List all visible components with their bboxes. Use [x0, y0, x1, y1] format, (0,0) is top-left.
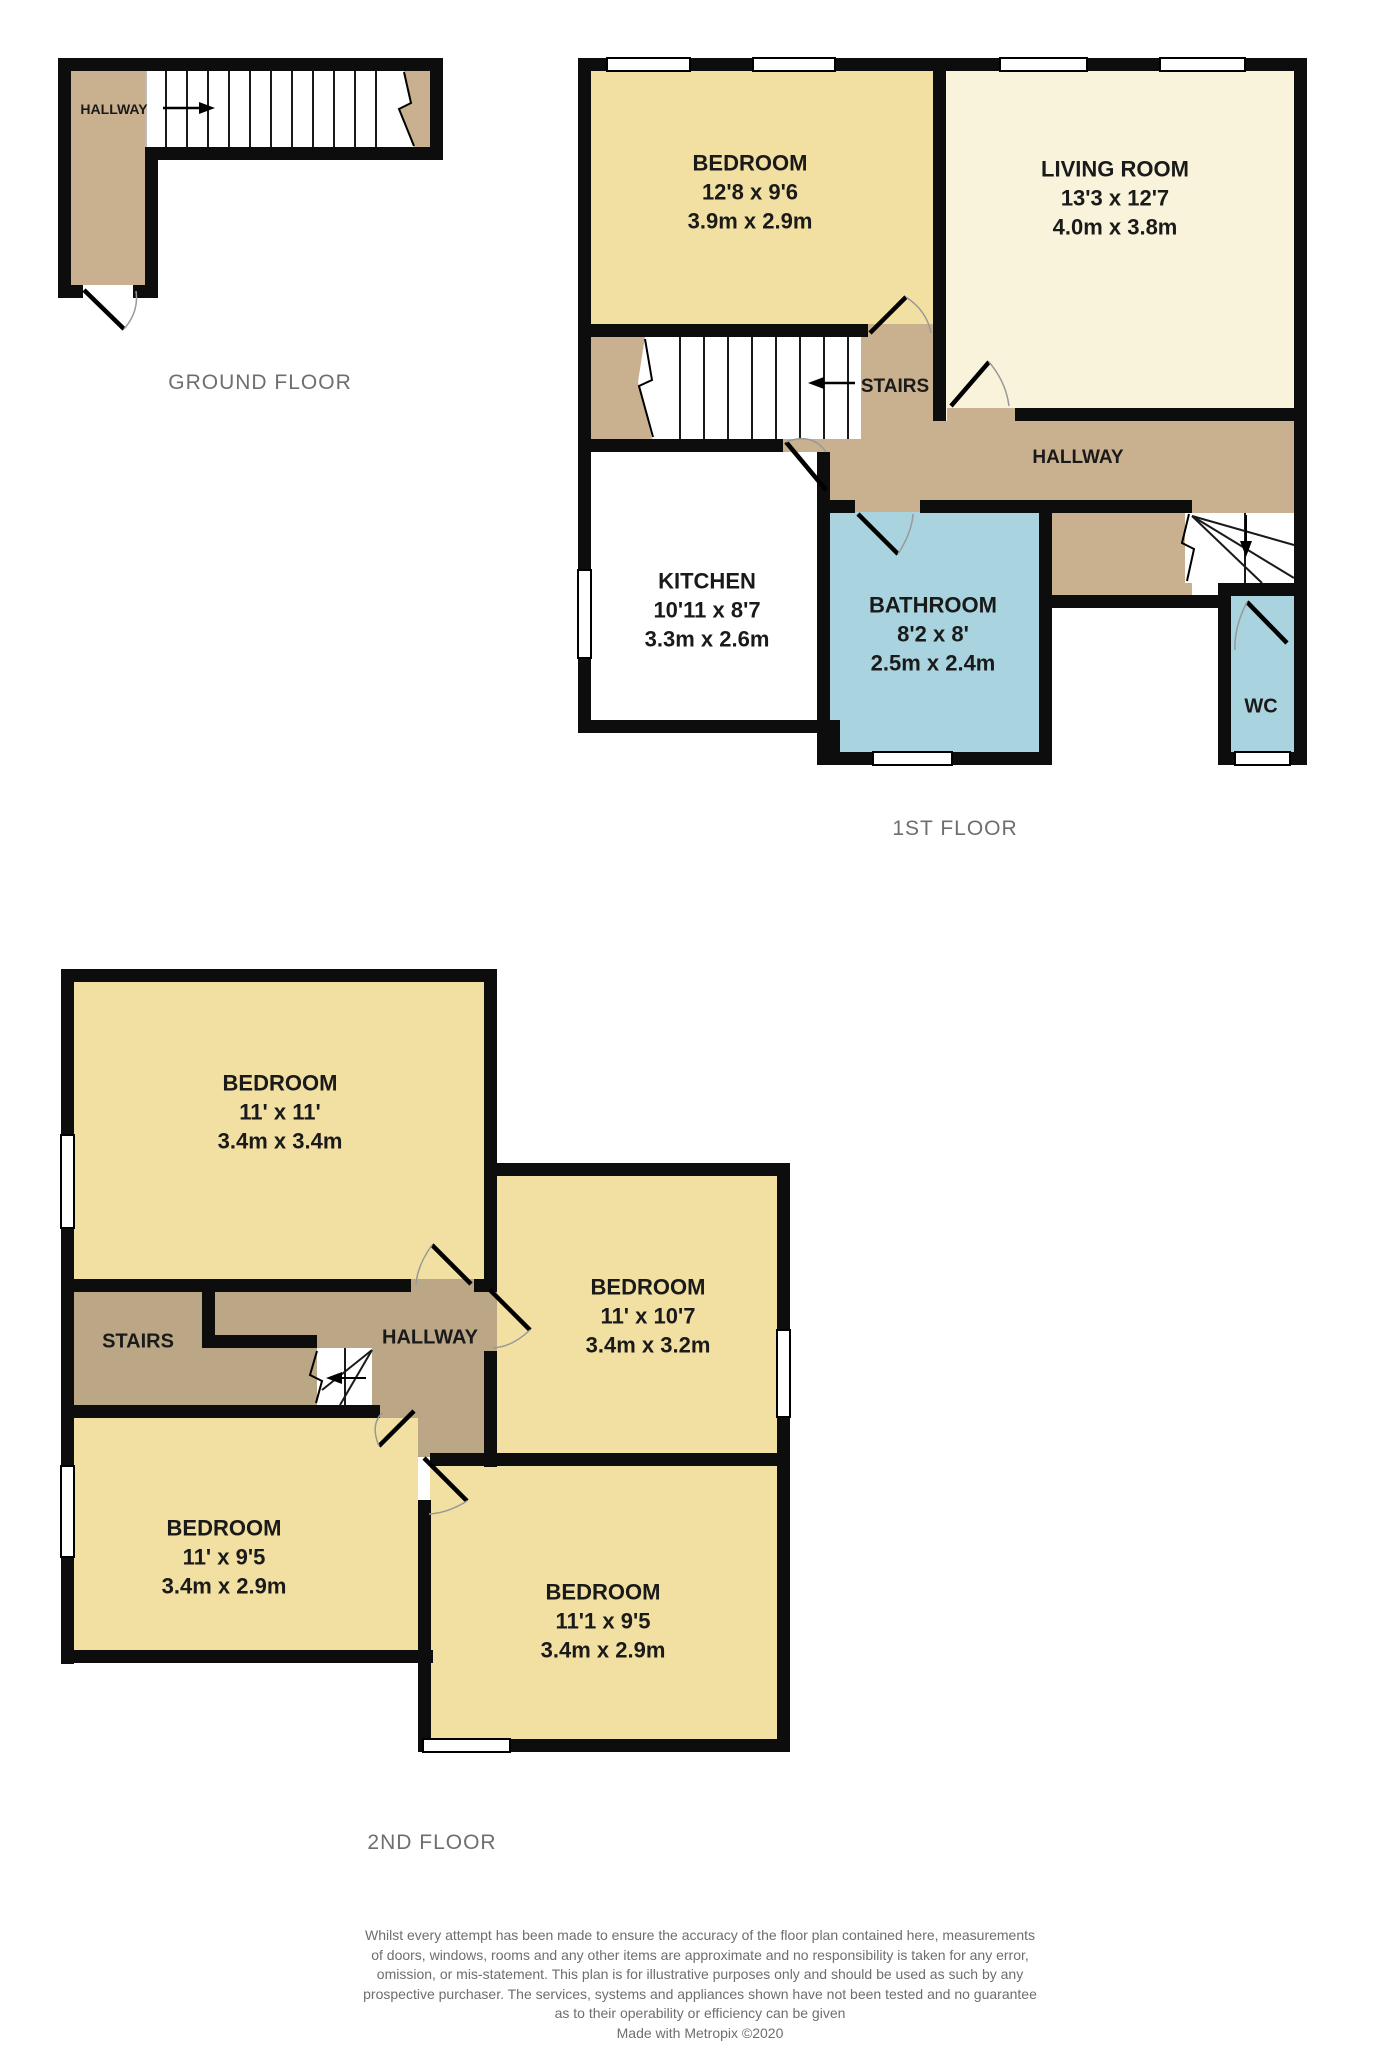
- room-size-imperial: 11'1 x 9'5: [541, 1607, 666, 1636]
- room-label-bedroom-1f: BEDROOM 12'8 x 9'6 3.9m x 2.9m: [688, 149, 813, 236]
- room-size-imperial: 11' x 11': [218, 1098, 343, 1127]
- stairs-winder: [310, 1348, 372, 1405]
- second-floor-plan: [61, 969, 790, 1752]
- disclaimer-line: omission, or mis-statement. This plan is…: [280, 1965, 1120, 1985]
- second-floor-title: 2ND FLOOR: [367, 1831, 496, 1855]
- room-size-imperial: 13'3 x 12'7: [1041, 184, 1189, 213]
- entrance-door: [84, 290, 137, 329]
- room-name: BEDROOM: [218, 1069, 343, 1098]
- room-size-metric: 3.4m x 3.4m: [218, 1127, 343, 1156]
- room-name: BATHROOM: [869, 591, 997, 620]
- room-size-imperial: 11' x 9'5: [162, 1543, 287, 1572]
- room-label-bedroom-left-2f: BEDROOM 11' x 9'5 3.4m x 2.9m: [162, 1514, 287, 1601]
- room-name: BEDROOM: [541, 1578, 666, 1607]
- room-name: LIVING ROOM: [1041, 155, 1189, 184]
- ground-floor-title: GROUND FLOOR: [168, 371, 352, 395]
- room-size-imperial: 11' x 10'7: [586, 1302, 711, 1331]
- disclaimer-line: Whilst every attempt has been made to en…: [280, 1926, 1120, 1946]
- room-size-metric: 3.4m x 3.2m: [586, 1331, 711, 1360]
- second-floor-hallway-label: HALLWAY: [382, 1327, 478, 1350]
- room-label-kitchen: KITCHEN 10'11 x 8'7 3.3m x 2.6m: [645, 567, 770, 654]
- stairs-down-winder: [1182, 513, 1294, 583]
- first-floor-hallway-label: HALLWAY: [1032, 447, 1123, 469]
- wc-label: WC: [1244, 696, 1277, 719]
- disclaimer-text: Whilst every attempt has been made to en…: [280, 1926, 1120, 2043]
- floorplan-graphic: [0, 0, 1385, 2048]
- first-floor-stairs-label: STAIRS: [861, 376, 929, 398]
- room-name: KITCHEN: [645, 567, 770, 596]
- room-size-imperial: 12'8 x 9'6: [688, 178, 813, 207]
- ground-hallway-label: HALLWAY: [80, 101, 147, 117]
- room-name: BEDROOM: [586, 1273, 711, 1302]
- room-size-metric: 4.0m x 3.8m: [1041, 213, 1189, 242]
- room-size-metric: 2.5m x 2.4m: [869, 649, 997, 678]
- room-size-metric: 3.3m x 2.6m: [645, 625, 770, 654]
- room-size-metric: 3.4m x 2.9m: [162, 1572, 287, 1601]
- room-label-bedroom-bottom-2f: BEDROOM 11'1 x 9'5 3.4m x 2.9m: [541, 1578, 666, 1665]
- disclaimer-line: of doors, windows, rooms and any other i…: [280, 1946, 1120, 1966]
- room-label-bedroom-top-2f: BEDROOM 11' x 11' 3.4m x 3.4m: [218, 1069, 343, 1156]
- room-label-living-room: LIVING ROOM 13'3 x 12'7 4.0m x 3.8m: [1041, 155, 1189, 242]
- floorplan-page: HALLWAY GROUND FLOOR BEDROOM 12'8 x 9'6 …: [0, 0, 1385, 2048]
- ground-floor-plan: [58, 58, 443, 329]
- room-size-metric: 3.9m x 2.9m: [688, 207, 813, 236]
- second-floor-stairs-label: STAIRS: [102, 1331, 174, 1354]
- room-label-bedroom-right-2f: BEDROOM 11' x 10'7 3.4m x 3.2m: [586, 1273, 711, 1360]
- room-size-metric: 3.4m x 2.9m: [541, 1636, 666, 1665]
- disclaimer-line: as to their operability or efficiency ca…: [280, 2004, 1120, 2024]
- disclaimer-line: prospective purchaser. The services, sys…: [280, 1985, 1120, 2005]
- first-floor-title: 1ST FLOOR: [892, 817, 1017, 841]
- room-size-imperial: 8'2 x 8': [869, 620, 997, 649]
- made-with-credit: Made with Metropix ©2020: [280, 2024, 1120, 2044]
- room-name: BEDROOM: [162, 1514, 287, 1543]
- room-name: BEDROOM: [688, 149, 813, 178]
- room-size-imperial: 10'11 x 8'7: [645, 596, 770, 625]
- room-label-bathroom: BATHROOM 8'2 x 8' 2.5m x 2.4m: [869, 591, 997, 678]
